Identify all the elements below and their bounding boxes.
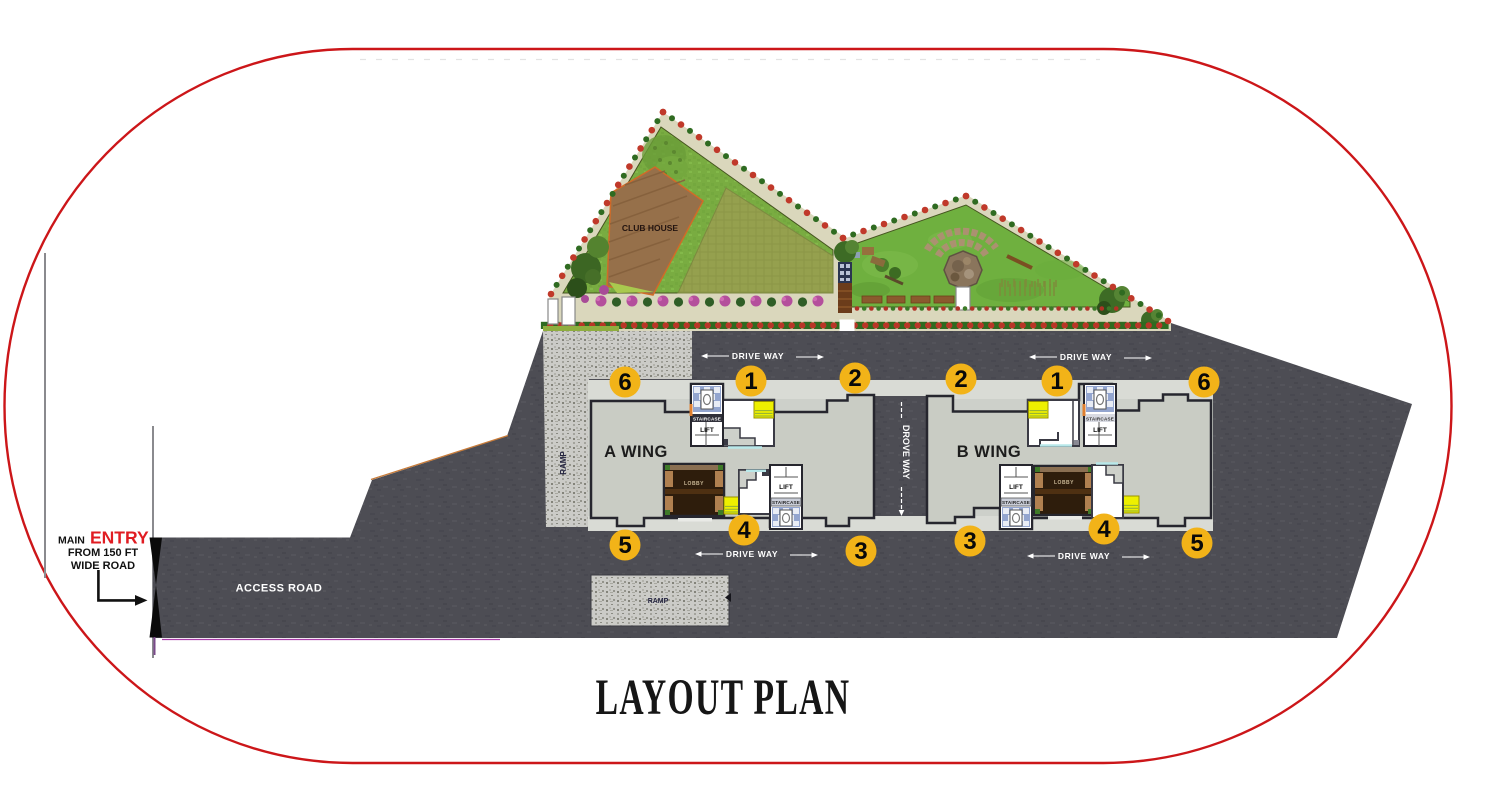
svg-text:ENTRY: ENTRY <box>90 528 149 548</box>
svg-text:MAIN: MAIN <box>58 535 85 547</box>
svg-text:2: 2 <box>954 366 967 393</box>
svg-text:3: 3 <box>854 538 867 565</box>
svg-text:DRIVE WAY: DRIVE WAY <box>726 549 778 559</box>
svg-text:3: 3 <box>963 528 976 555</box>
svg-text:LIFT: LIFT <box>779 484 793 491</box>
svg-text:RAMP: RAMP <box>648 598 669 605</box>
svg-text:STAIRCASE: STAIRCASE <box>693 416 721 421</box>
svg-text:STAIRCASE: STAIRCASE <box>1086 416 1114 421</box>
svg-text:6: 6 <box>1197 369 1210 396</box>
svg-text:DRIVE WAY: DRIVE WAY <box>732 351 784 361</box>
svg-text:WIDE ROAD: WIDE ROAD <box>71 560 135 572</box>
svg-text:DROVE WAY: DROVE WAY <box>901 425 911 479</box>
svg-text:LAYOUT PLAN: LAYOUT PLAN <box>596 670 851 725</box>
svg-text:LOBBY: LOBBY <box>684 481 704 487</box>
svg-text:RAMP: RAMP <box>559 451 568 475</box>
svg-text:STAIRCASE: STAIRCASE <box>1002 500 1030 505</box>
svg-text:CLUB HOUSE: CLUB HOUSE <box>622 223 679 233</box>
svg-text:6: 6 <box>618 369 631 396</box>
svg-text:1: 1 <box>1050 368 1063 395</box>
svg-text:4: 4 <box>737 517 751 544</box>
svg-text:4: 4 <box>1097 516 1111 543</box>
svg-text:2: 2 <box>848 365 861 392</box>
svg-text:5: 5 <box>618 532 631 559</box>
svg-text:LIFT: LIFT <box>1009 484 1023 491</box>
svg-text:DRIVE WAY: DRIVE WAY <box>1058 551 1110 561</box>
svg-text:A WING: A WING <box>604 443 668 461</box>
svg-text:FROM 150 FT: FROM 150 FT <box>68 547 139 559</box>
svg-text:DRIVE WAY: DRIVE WAY <box>1060 352 1112 362</box>
svg-text:ACCESS ROAD: ACCESS ROAD <box>236 583 323 595</box>
svg-text:LIFT: LIFT <box>1093 427 1107 434</box>
svg-text:LIFT: LIFT <box>700 427 714 434</box>
svg-text:STAIRCASE: STAIRCASE <box>772 500 800 505</box>
svg-text:LOBBY: LOBBY <box>1054 480 1074 486</box>
svg-text:5: 5 <box>1190 530 1203 557</box>
svg-text:1: 1 <box>744 368 757 395</box>
svg-text:B WING: B WING <box>957 443 1021 461</box>
